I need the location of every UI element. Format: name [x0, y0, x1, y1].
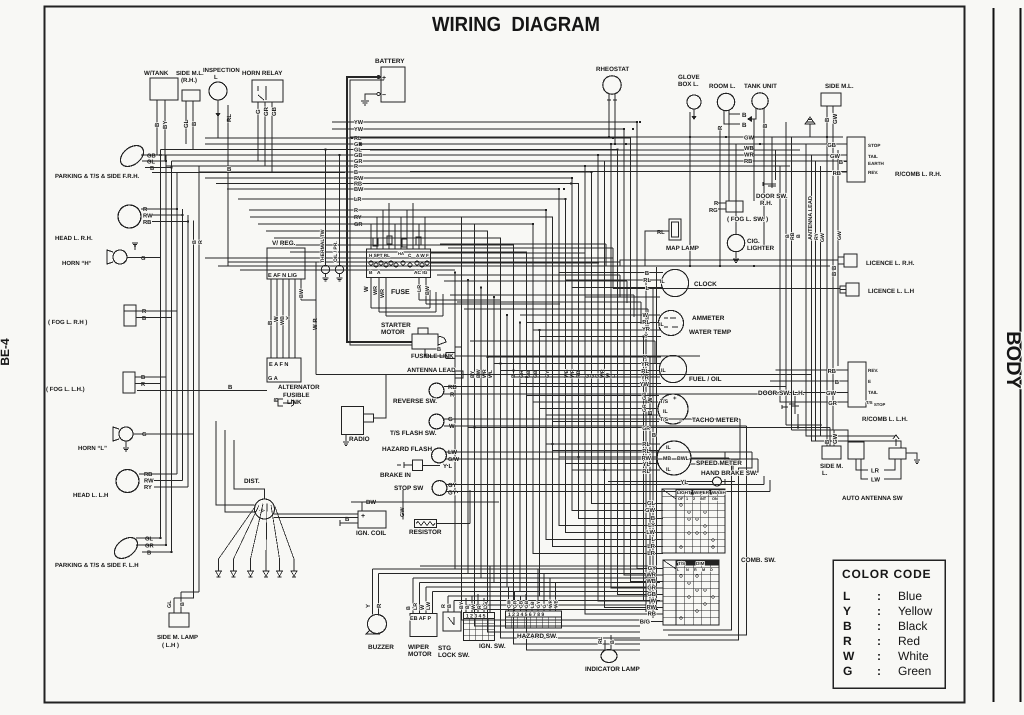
svg-text:W: W [843, 649, 855, 663]
svg-text:CLOCK: CLOCK [694, 281, 717, 288]
svg-text:WB: WB [554, 599, 560, 608]
svg-text:B: B [406, 606, 412, 610]
svg-text:WR: WR [548, 599, 554, 608]
svg-text:W R: W R [312, 318, 319, 330]
svg-text:AMMETER: AMMETER [692, 315, 725, 322]
svg-text:Y: Y [843, 604, 851, 618]
svg-text:GW: GW [820, 233, 826, 242]
svg-text:GY·: GY· [448, 490, 459, 497]
svg-text:INSPECTION: INSPECTION [203, 67, 240, 74]
svg-text:SIDE M. LAMP: SIDE M. LAMP [157, 634, 198, 641]
svg-text:B: B [228, 384, 233, 391]
svg-text:LR: LR [647, 544, 656, 550]
svg-text:GR: GR [642, 426, 650, 432]
svg-text:( FOG L. SW. ): ( FOG L. SW. ) [727, 216, 768, 223]
svg-text:BATTERY: BATTERY [375, 58, 405, 65]
svg-text:( L.H ): ( L.H ) [162, 642, 179, 649]
svg-text:Y: Y [644, 334, 648, 340]
svg-text:COLOR CODE: COLOR CODE [842, 567, 931, 581]
svg-text:TACHO METER: TACHO METER [692, 417, 739, 424]
svg-text:Red: Red [898, 634, 920, 648]
svg-text:HAZARD SW.: HAZARD SW. [517, 633, 558, 640]
svg-text:PARKING & T/S & SIDE F.R.H.: PARKING & T/S & SIDE F.R.H. [55, 173, 140, 180]
svg-text:B: B [796, 234, 802, 238]
svg-text:STOP: STOP [874, 402, 886, 407]
svg-text:IGN. SW.: IGN. SW. [479, 643, 506, 650]
svg-text:T/S: T/S [660, 417, 669, 423]
svg-text:ANTENNA LEAD: ANTENNA LEAD [808, 196, 814, 240]
svg-text:L.: L. [822, 470, 828, 477]
svg-text:L: L [214, 74, 218, 81]
svg-text:Black: Black [898, 619, 928, 633]
svg-text:STOP SW: STOP SW [394, 485, 424, 492]
svg-text:T/S: T/S [866, 400, 873, 405]
svg-text:E A F N: E A F N [269, 362, 288, 368]
svg-text:B: B [647, 410, 654, 415]
svg-text:B: B [839, 160, 843, 166]
svg-text:BUZZER: BUZZER [368, 644, 394, 651]
svg-text:MOTOR: MOTOR [381, 329, 405, 336]
svg-text:RL: RL [643, 278, 651, 284]
svg-text:L: L [651, 537, 655, 543]
svg-text:BODY: BODY [1002, 331, 1024, 389]
svg-text:STOP: STOP [868, 143, 880, 148]
svg-text:LIGHT: LIGHT [677, 490, 691, 495]
svg-text:HEAD L. R.H.: HEAD L. R.H. [55, 235, 93, 242]
svg-text:B: B [191, 121, 198, 126]
svg-text:G: G [255, 109, 262, 114]
svg-text:HORN “L”: HORN “L” [78, 445, 107, 452]
svg-text:B: B [610, 640, 616, 644]
svg-text::: : [877, 634, 881, 648]
svg-text:G: G [843, 664, 852, 678]
svg-text:GR: GR [647, 585, 657, 592]
svg-text:R: R [694, 568, 697, 572]
svg-text:B: B [843, 619, 852, 633]
svg-text:MOTOR: MOTOR [408, 651, 432, 658]
svg-text:GL: GL [145, 536, 154, 543]
svg-text:Blue: Blue [898, 589, 922, 603]
svg-text:G A: G A [268, 376, 278, 382]
svg-text:LW: LW [871, 477, 880, 484]
svg-text:BW: BW [299, 288, 305, 298]
svg-text:YR: YR [641, 376, 650, 382]
svg-text:REV.: REV. [868, 368, 878, 373]
svg-text:RY: RY [354, 215, 362, 221]
svg-text:LW: LW [426, 601, 432, 610]
svg-text:B: B [645, 271, 649, 277]
svg-text:B: B [762, 123, 769, 128]
svg-text:White: White [898, 649, 929, 663]
svg-text:BWL: BWL [677, 456, 690, 462]
svg-text:B: B [831, 265, 838, 270]
svg-text:DOOR SW. L.H.: DOOR SW. L.H. [758, 390, 805, 397]
svg-text:YR: YR [641, 362, 650, 368]
svg-text:IGN. COIL: IGN. COIL [356, 530, 386, 537]
svg-text:WR: WR [744, 153, 754, 159]
svg-text:LB: LB [530, 601, 536, 608]
svg-text:PARKING & T/S & SIDE F. L.H: PARKING & T/S & SIDE F. L.H [55, 562, 139, 569]
svg-text:BW: BW [366, 499, 376, 506]
svg-text:W: W [643, 313, 649, 319]
svg-text:LIGHTER: LIGHTER [747, 245, 775, 252]
svg-text:B: B [150, 166, 154, 172]
svg-text:R: R [376, 603, 383, 608]
svg-text:B: B [267, 320, 274, 325]
svg-text:R: R [843, 634, 852, 648]
svg-text:YL: YL [643, 462, 651, 468]
svg-text:GY: GY [648, 565, 657, 572]
svg-text:DIM: DIM [696, 561, 705, 566]
svg-text:−: − [679, 419, 683, 425]
svg-text:RL: RL [642, 442, 650, 448]
svg-text:T/S: T/S [660, 399, 669, 405]
svg-text:Y: Y [365, 604, 372, 608]
svg-text:RL: RL [642, 469, 650, 475]
svg-text:WIPER: WIPER [694, 490, 710, 495]
svg-text::: : [877, 589, 881, 603]
svg-text:AUTO ANTENNA SW: AUTO ANTENNA SW [842, 495, 903, 502]
svg-text::: : [877, 664, 881, 678]
svg-text:B: B [180, 602, 186, 606]
svg-text:E: E [868, 379, 871, 384]
svg-text:B: B [742, 112, 747, 119]
svg-text:N: N [686, 568, 689, 572]
svg-text:STARTER: STARTER [381, 322, 411, 329]
svg-text:MB: MB [663, 456, 671, 462]
svg-text:WIRING DIAGRAM: WIRING DIAGRAM [432, 13, 600, 36]
svg-text:YW: YW [354, 127, 364, 133]
svg-text:TAIL: TAIL [868, 390, 878, 395]
svg-text:B: B [824, 439, 831, 444]
svg-text:GW: GW [837, 231, 843, 240]
svg-text:LG: LG [483, 602, 489, 609]
svg-text:DOOR SW.: DOOR SW. [756, 193, 788, 200]
svg-text:MAP LAMP: MAP LAMP [666, 245, 699, 252]
svg-text:INT: INT [700, 497, 707, 501]
svg-text:Yellow: Yellow [898, 604, 933, 618]
svg-text:GB: GB [147, 153, 156, 160]
svg-text:B: B [831, 271, 838, 276]
svg-text:HORN RELAY: HORN RELAY [242, 70, 283, 77]
svg-text:FUEL / OIL: FUEL / OIL [689, 376, 722, 383]
svg-text:T/S: T/S [678, 561, 685, 566]
svg-text:YL: YL [680, 479, 688, 486]
svg-text:BE-4: BE-4 [0, 338, 12, 366]
svg-text:( FOG L. R.H ): ( FOG L. R.H ) [48, 319, 87, 326]
svg-text:ON: ON [712, 497, 718, 501]
svg-text:R.H.: R.H. [760, 200, 773, 207]
svg-text:OIL / PR.: OIL / PR. [333, 241, 339, 262]
svg-text:WB: WB [646, 579, 656, 585]
svg-text:L: L [843, 589, 850, 603]
svg-text:BOX L.: BOX L. [678, 81, 699, 88]
svg-text:RY: RY [144, 485, 152, 491]
svg-text:HAZARD FLASH: HAZARD FLASH [382, 446, 432, 453]
svg-text:LW: LW [646, 530, 655, 536]
svg-text:2: 2 [693, 497, 695, 501]
svg-text:GB: GB [647, 591, 656, 598]
svg-text:W: W [651, 599, 657, 605]
svg-text:WASH: WASH [712, 490, 726, 495]
svg-text:WR: WR [373, 286, 379, 295]
svg-text:DIST.: DIST. [244, 478, 260, 485]
svg-text:RG: RG [709, 207, 718, 214]
svg-text:ALTERNATOR: ALTERNATOR [278, 384, 320, 391]
svg-text:LR: LR [413, 603, 419, 610]
svg-text:YW: YW [640, 382, 650, 388]
svg-text:G: G [141, 255, 146, 262]
svg-text:B: B [141, 375, 145, 381]
svg-text:B: B [742, 122, 747, 129]
svg-text:B: B [652, 433, 656, 439]
svg-text:B: B [369, 270, 373, 276]
svg-text:TAIL: TAIL [868, 154, 878, 159]
svg-text:GR: GR [263, 106, 270, 116]
svg-text:A W F: A W F [416, 253, 429, 258]
svg-text:LR: LR [354, 197, 361, 203]
svg-text:HA: HA [398, 251, 404, 256]
svg-text:RB: RB [828, 369, 836, 375]
svg-text:REV.: REV. [868, 170, 878, 175]
svg-text:RL: RL [226, 114, 233, 122]
svg-text:WR: WR [380, 289, 386, 298]
svg-text:RW: RW [144, 479, 154, 485]
svg-text:RB: RB [833, 171, 841, 177]
svg-text:B: B [437, 347, 441, 353]
svg-text::: : [877, 619, 881, 633]
svg-text:G: G [542, 604, 548, 608]
svg-text:B: B [142, 316, 146, 322]
svg-text:RW: RW [646, 605, 656, 611]
svg-text:RL: RL [642, 320, 650, 326]
svg-text:GR: GR [828, 400, 838, 407]
svg-text:WIPER: WIPER [408, 644, 429, 651]
svg-text:RB: RB [648, 612, 656, 618]
svg-text::: : [877, 604, 881, 618]
svg-text:GB: GB [271, 106, 278, 116]
svg-text:HAND BRAKE SW.: HAND BRAKE SW. [701, 470, 758, 477]
svg-text:R: R [354, 208, 358, 214]
svg-text:SIDE M.: SIDE M. [820, 463, 843, 470]
svg-text:GL: GL [167, 600, 173, 608]
svg-text:GB: GB [827, 142, 836, 149]
svg-text:GW: GW [645, 507, 656, 514]
svg-text:GL: GL [183, 119, 190, 128]
svg-text:GW: GW [832, 113, 839, 124]
svg-text:+: + [361, 513, 365, 520]
svg-text:EARTH: EARTH [868, 161, 885, 166]
svg-text:B: B [154, 122, 161, 127]
svg-text:LR: LR [647, 551, 656, 557]
svg-text:GW: GW [507, 599, 513, 608]
svg-text:D: D [710, 568, 713, 572]
svg-text:FUSE: FUSE [391, 289, 410, 296]
svg-text:GW: GW [826, 390, 837, 397]
svg-text:GR: GR [354, 222, 362, 228]
svg-text:W/TANK: W/TANK [144, 70, 169, 77]
svg-text:·p·: ·p· [259, 508, 266, 514]
svg-text:RB: RB [143, 220, 151, 226]
svg-text:GR: GR [512, 600, 518, 608]
svg-text:B: B [835, 380, 839, 386]
svg-text:LICENCE L. R.H.: LICENCE L. R.H. [866, 260, 915, 267]
svg-text:M: M [702, 568, 705, 572]
svg-text:WB: WB [744, 146, 754, 152]
svg-text:R: R [450, 392, 455, 399]
svg-text:RADIO: RADIO [349, 436, 370, 443]
svg-text:W: W [363, 286, 370, 292]
svg-text:LINK: LINK [287, 399, 302, 406]
svg-text:WL: WL [488, 369, 494, 378]
svg-text:−: − [382, 92, 386, 99]
svg-text:GW: GW [830, 153, 841, 160]
svg-text:YW: YW [354, 120, 364, 126]
svg-text:STG: STG [438, 645, 451, 652]
svg-text:GW: GW [832, 433, 839, 444]
svg-text:B: B [273, 397, 280, 402]
svg-text:E AF N LIG: E AF N LIG [268, 273, 297, 279]
svg-text:LR: LR [417, 285, 423, 292]
svg-text:Y L: Y L [443, 463, 453, 470]
svg-text:RL: RL [642, 449, 650, 455]
svg-text:CIG.: CIG. [747, 238, 760, 245]
svg-text:B: B [447, 604, 453, 608]
svg-text:THERMAL TW: THERMAL TW [320, 229, 326, 263]
svg-text:RESISTOR: RESISTOR [409, 529, 442, 536]
svg-text:H SPT RL: H SPT RL [369, 253, 390, 258]
svg-text:GLOVE: GLOVE [678, 74, 700, 81]
svg-text:BY: BY [162, 121, 169, 129]
svg-text:BRAKE IN: BRAKE IN [380, 472, 411, 479]
svg-text:B/G: B/G [640, 619, 651, 626]
svg-text::: : [877, 649, 881, 663]
svg-text:RB: RB [144, 472, 152, 478]
svg-text:WR: WR [646, 573, 656, 579]
svg-text:R: R [717, 125, 724, 130]
svg-text:COMB. SW.: COMB. SW. [741, 557, 776, 564]
svg-text:B: B [651, 516, 655, 522]
svg-text:V/ REG.: V/ REG. [272, 240, 296, 247]
svg-text:R/COMB L. L.H.: R/COMB L. L.H. [862, 416, 908, 423]
svg-text:T/S FLASH SW.: T/S FLASH SW. [390, 430, 437, 437]
svg-text:FUSIBLE: FUSIBLE [283, 392, 309, 399]
svg-text:Green: Green [898, 664, 931, 678]
svg-text:( FOG L. L.H.): ( FOG L. L.H.) [46, 386, 85, 393]
svg-text:OF: OF [678, 497, 684, 501]
svg-text:ROOM L.: ROOM L. [709, 83, 736, 90]
svg-text:SIDE M.L.: SIDE M.L. [825, 83, 854, 90]
svg-text:RB: RB [448, 384, 457, 391]
svg-text:HORN “H°: HORN “H° [62, 260, 92, 267]
svg-text:REVERSE SW.: REVERSE SW. [393, 398, 437, 405]
svg-text:B: B [824, 117, 831, 122]
svg-text:GY: GY [536, 600, 542, 608]
svg-text:EB AF P: EB AF P [410, 616, 431, 622]
svg-text:A: A [377, 270, 381, 276]
svg-text:BW: BW [425, 285, 431, 295]
svg-text:SIDE M.L.: SIDE M.L. [176, 70, 204, 77]
svg-text:+: + [382, 75, 386, 82]
svg-text:1: 1 [686, 497, 688, 501]
svg-text:INDICATOR LAMP: INDICATOR LAMP [585, 666, 641, 673]
svg-text:ANTENNA LEAD: ANTENNA LEAD [407, 367, 456, 374]
svg-text:AC IG: AC IG [414, 270, 428, 276]
svg-text:B: B [147, 551, 151, 557]
svg-text:LR: LR [871, 468, 880, 475]
svg-text:LOCK SW.: LOCK SW. [438, 652, 470, 659]
svg-text:R/COMB L. R.H.: R/COMB L. R.H. [895, 171, 942, 178]
svg-text:L: L [645, 286, 649, 292]
svg-text:WATER TEMP: WATER TEMP [689, 329, 732, 336]
svg-text:Y: Y [285, 316, 292, 320]
svg-text:(R.H.): (R.H.) [181, 77, 197, 84]
svg-text:RHEOSTAT: RHEOSTAT [596, 66, 629, 73]
svg-text:GB: GB [518, 600, 524, 608]
svg-text:YR: YR [642, 327, 651, 333]
svg-text:GB: GB [524, 600, 530, 608]
svg-text:GY: GY [448, 482, 457, 489]
svg-text:B: B [227, 166, 232, 173]
svg-text:GL: GL [147, 159, 156, 166]
svg-text:RL: RL [598, 636, 604, 644]
svg-text:TANK UNIT: TANK UNIT [744, 83, 777, 90]
svg-text:GL: GL [647, 500, 656, 507]
svg-text:+: + [673, 396, 677, 402]
svg-text:BW: BW [354, 187, 364, 193]
svg-text:RW: RW [143, 214, 153, 220]
svg-text:SPEED METER: SPEED METER [696, 460, 742, 467]
svg-text:GW: GW [744, 135, 755, 142]
svg-text:LICENCE L. L.H: LICENCE L. L.H [868, 288, 915, 295]
svg-text:GR: GR [145, 543, 155, 550]
svg-text:HEAD L. L.H: HEAD L. L.H [73, 492, 108, 499]
svg-text:R: R [198, 240, 204, 244]
svg-text:RB: RB [744, 159, 752, 165]
svg-text:LY: LY [648, 523, 655, 529]
svg-text:W: W [273, 316, 280, 322]
